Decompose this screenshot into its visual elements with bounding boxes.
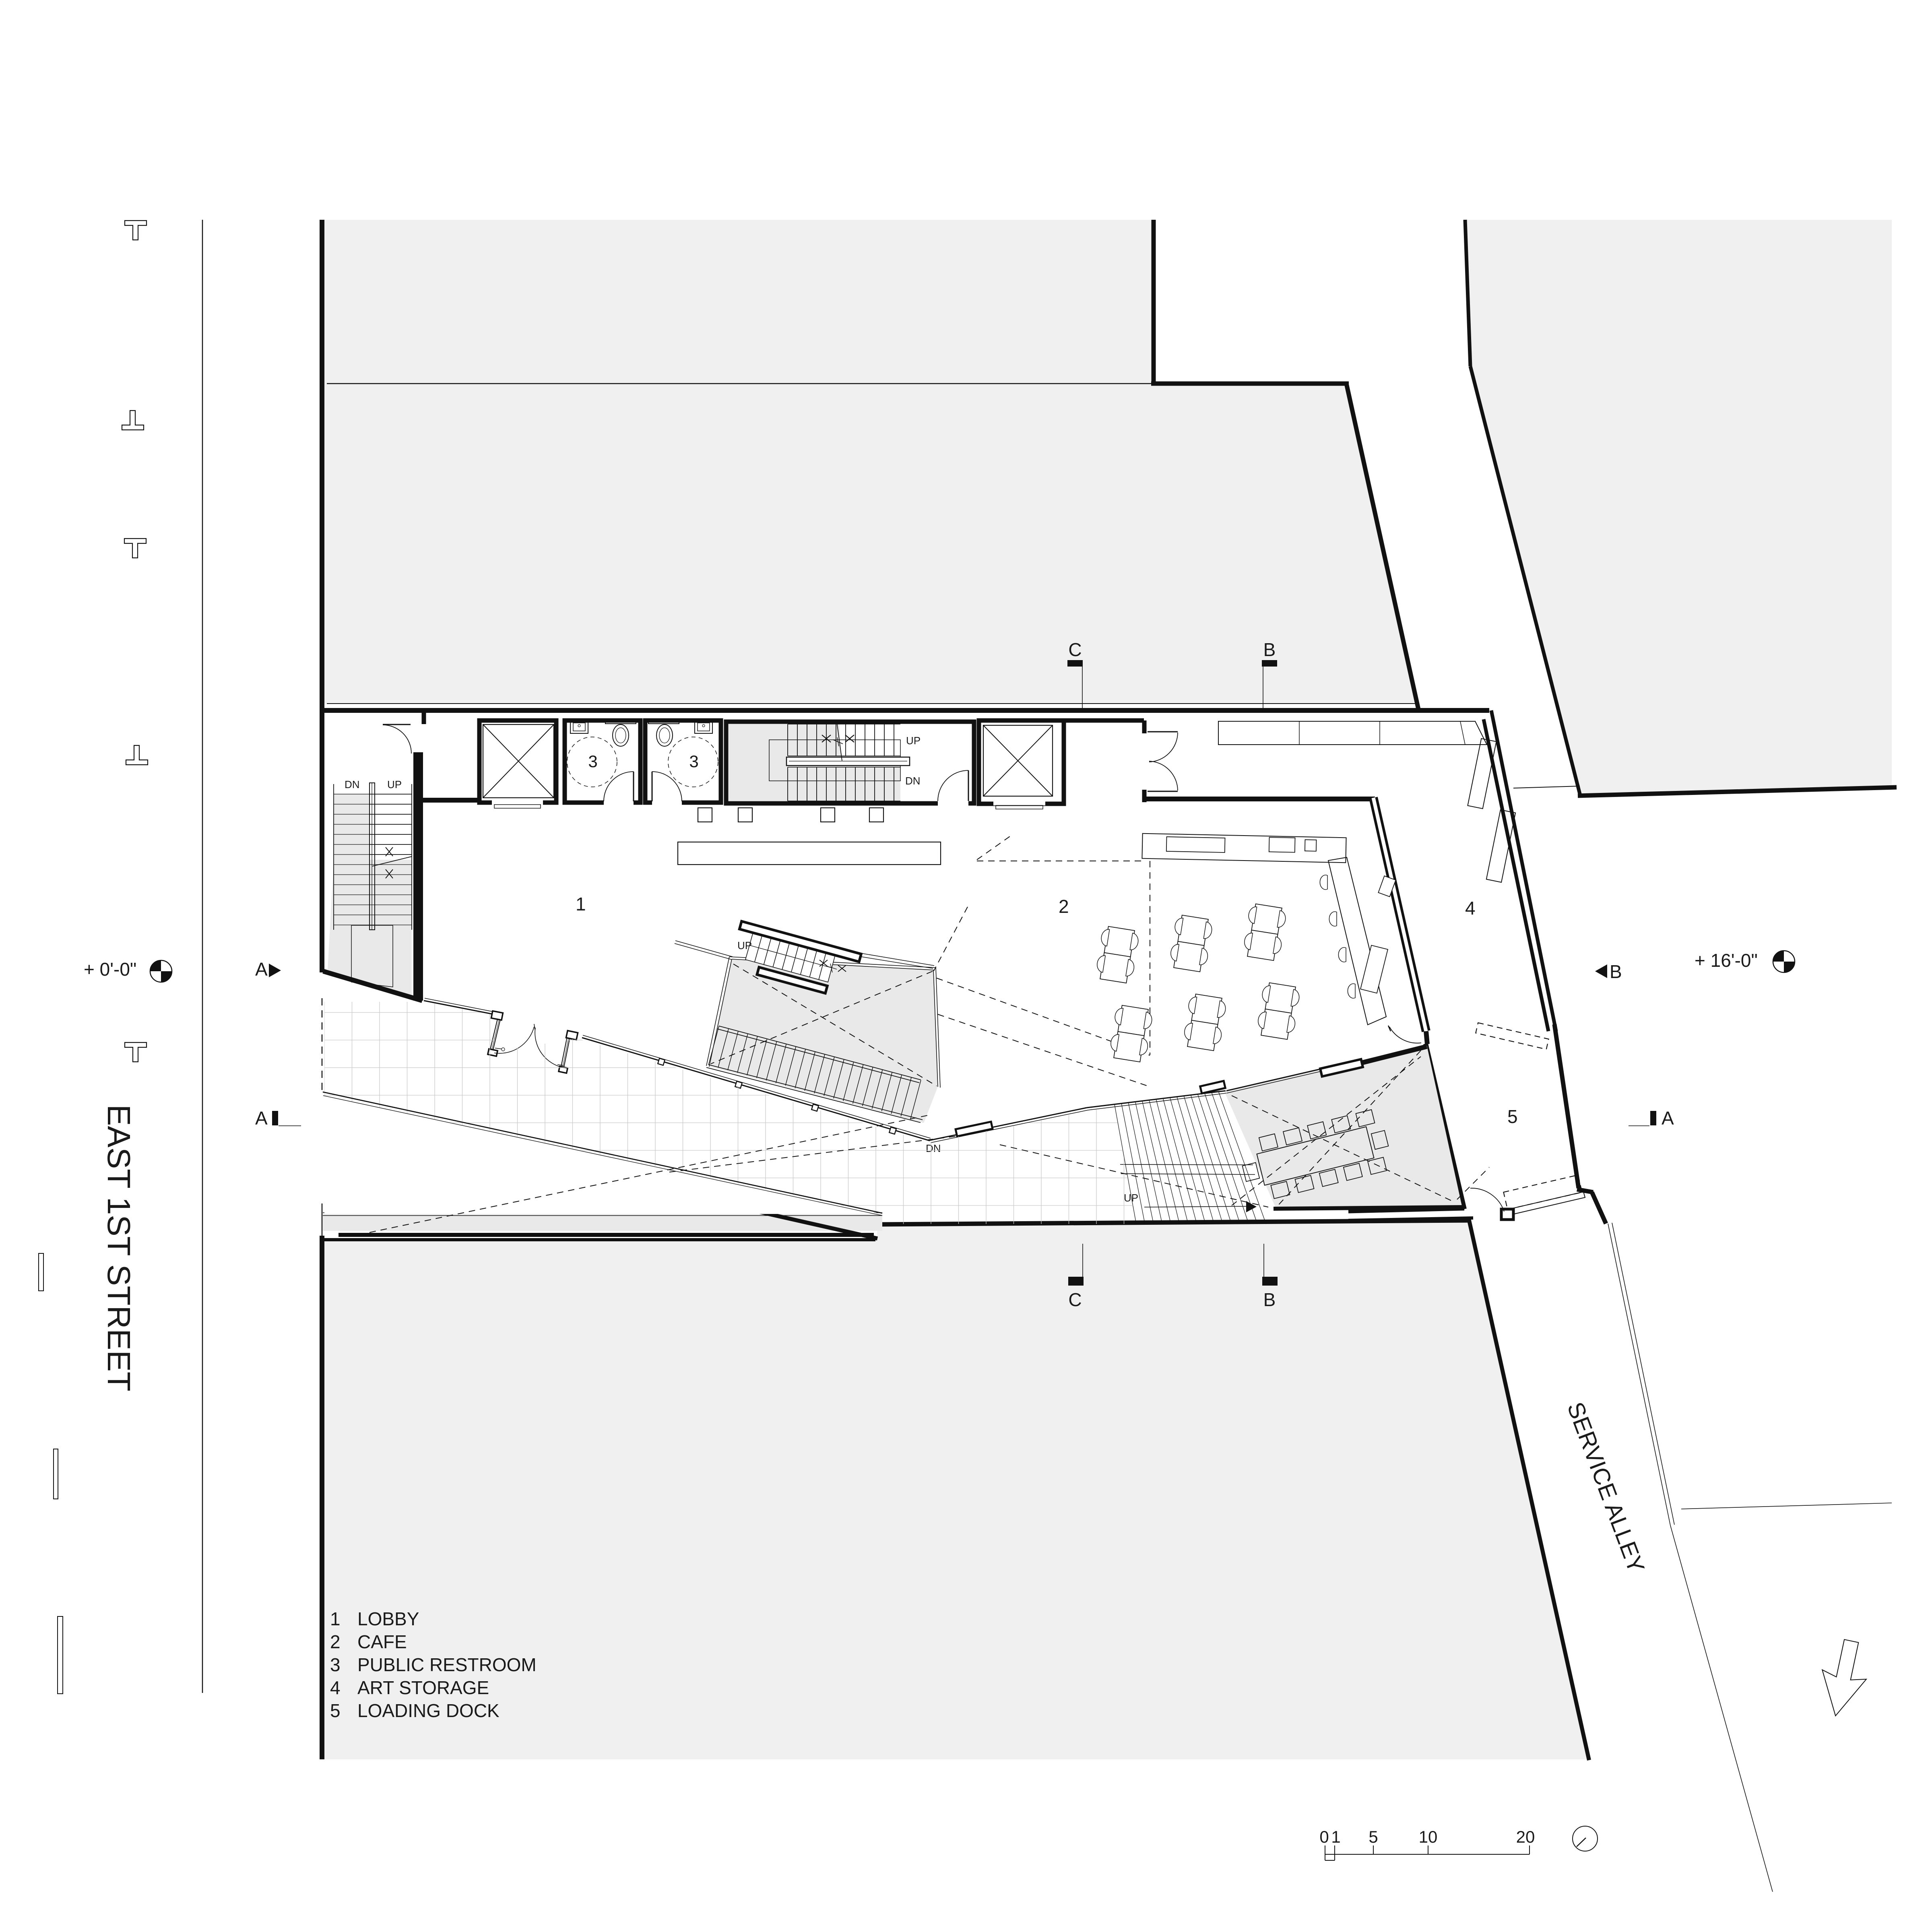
svg-text:20: 20 xyxy=(1516,1827,1535,1846)
svg-text:DN: DN xyxy=(926,1142,941,1154)
svg-text:1: 1 xyxy=(330,1608,341,1629)
svg-text:UP: UP xyxy=(387,778,402,791)
svg-text:B: B xyxy=(1263,639,1276,660)
svg-text:3: 3 xyxy=(330,1654,341,1675)
svg-text:B: B xyxy=(1610,961,1622,982)
svg-text:C: C xyxy=(1068,639,1082,660)
svg-text:LOBBY: LOBBY xyxy=(357,1608,419,1629)
svg-text:5: 5 xyxy=(1507,1106,1518,1127)
svg-text:EAST 1ST STREET: EAST 1ST STREET xyxy=(101,1104,137,1391)
svg-text:UP: UP xyxy=(1124,1192,1138,1204)
svg-text:4: 4 xyxy=(1465,898,1476,919)
svg-text:+ 0'-0": + 0'-0" xyxy=(84,959,136,980)
svg-text:C: C xyxy=(1068,1289,1082,1310)
svg-text:UP: UP xyxy=(906,735,921,747)
svg-text:ART STORAGE: ART STORAGE xyxy=(357,1677,489,1698)
svg-text:CAFE: CAFE xyxy=(357,1631,407,1652)
svg-text:A: A xyxy=(255,959,268,980)
svg-text:1: 1 xyxy=(576,894,586,914)
svg-text:PUBLIC RESTROOM: PUBLIC RESTROOM xyxy=(357,1654,537,1675)
svg-text:DN: DN xyxy=(345,778,360,791)
svg-text:A: A xyxy=(255,1108,268,1129)
svg-text:B: B xyxy=(1263,1289,1276,1310)
svg-text:LOADING DOCK: LOADING DOCK xyxy=(357,1700,500,1721)
svg-text:0: 0 xyxy=(1319,1827,1329,1846)
svg-text:5: 5 xyxy=(330,1700,341,1721)
svg-text:3: 3 xyxy=(689,752,698,771)
svg-text:10: 10 xyxy=(1419,1827,1438,1846)
svg-text:DN: DN xyxy=(905,775,921,787)
svg-text:1: 1 xyxy=(1331,1827,1340,1846)
svg-text:5: 5 xyxy=(1368,1827,1378,1846)
svg-text:2: 2 xyxy=(330,1631,341,1652)
svg-text:3: 3 xyxy=(588,752,597,771)
svg-text:A: A xyxy=(1662,1108,1674,1129)
svg-text:4: 4 xyxy=(330,1677,341,1698)
svg-text:UP: UP xyxy=(737,939,752,952)
svg-text:2: 2 xyxy=(1059,896,1069,917)
svg-text:+ 16'-0": + 16'-0" xyxy=(1695,950,1758,971)
